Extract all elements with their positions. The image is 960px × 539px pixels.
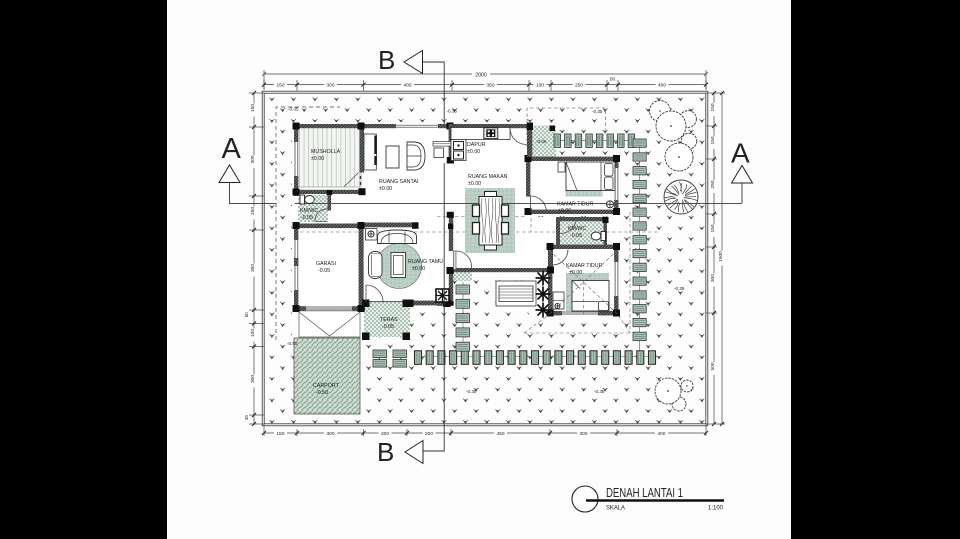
- svg-text:400: 400: [657, 431, 665, 437]
- svg-text:-0.35: -0.35: [592, 109, 603, 114]
- svg-text:450: 450: [496, 431, 504, 437]
- svg-text:±0.00: ±0.00: [558, 208, 571, 214]
- svg-text:150: 150: [250, 104, 256, 112]
- svg-text:-0.35: -0.35: [674, 286, 685, 291]
- svg-text:±0.00: ±0.00: [569, 270, 582, 276]
- svg-text:KM/WC: KM/WC: [568, 226, 586, 232]
- svg-text:200: 200: [425, 431, 433, 437]
- svg-text:DAPUR: DAPUR: [467, 142, 486, 148]
- svg-text:SKALA: SKALA: [606, 506, 625, 512]
- svg-text:300: 300: [710, 274, 716, 282]
- svg-text:50: 50: [610, 77, 616, 83]
- svg-text:KAMAR TIDUR: KAMAR TIDUR: [557, 202, 594, 208]
- svg-text:400: 400: [403, 83, 411, 89]
- svg-text:150: 150: [710, 136, 716, 144]
- svg-text:±0.00: ±0.00: [468, 181, 481, 187]
- svg-text:100: 100: [250, 329, 256, 337]
- svg-text:-0.50: -0.50: [316, 390, 328, 396]
- svg-text:300: 300: [250, 155, 256, 163]
- svg-text:-0.50: -0.50: [287, 341, 298, 346]
- svg-text:-0.35: -0.35: [288, 107, 299, 112]
- svg-text:TERAS: TERAS: [380, 317, 398, 323]
- svg-text:-0.05: -0.05: [382, 324, 394, 330]
- svg-text:-0.05: -0.05: [301, 215, 313, 221]
- svg-text:300: 300: [326, 83, 334, 89]
- svg-text:±0.00: ±0.00: [311, 156, 324, 162]
- svg-text:150: 150: [250, 207, 256, 215]
- svg-text:100: 100: [536, 83, 544, 89]
- svg-text:2000: 2000: [475, 72, 487, 78]
- svg-text:-0.30: -0.30: [466, 389, 477, 394]
- svg-text:GARASI: GARASI: [316, 261, 336, 267]
- svg-text:KM/WC: KM/WC: [300, 208, 318, 214]
- svg-text:1500: 1500: [718, 251, 724, 262]
- svg-text:B: B: [378, 45, 395, 75]
- svg-text:-0.05: -0.05: [536, 139, 547, 144]
- svg-text:250: 250: [710, 180, 716, 188]
- svg-text:-0.05: -0.05: [570, 233, 582, 239]
- svg-text:1:100: 1:100: [708, 506, 724, 512]
- svg-text:40: 40: [244, 415, 249, 420]
- svg-text:250: 250: [575, 83, 583, 89]
- svg-text:350: 350: [486, 83, 494, 89]
- svg-text:350: 350: [250, 264, 256, 272]
- svg-text:±0.00: ±0.00: [412, 266, 425, 272]
- svg-text:B: B: [377, 437, 394, 467]
- svg-text:CARPORT: CARPORT: [313, 383, 340, 389]
- svg-text:-0.35: -0.35: [447, 109, 458, 114]
- svg-text:-0.35: -0.35: [594, 389, 605, 394]
- svg-text:60: 60: [244, 312, 249, 317]
- svg-text:150: 150: [710, 224, 716, 232]
- svg-text:RUANG TAMU: RUANG TAMU: [408, 259, 443, 265]
- svg-text:RUANG MAKAN: RUANG MAKAN: [468, 174, 508, 180]
- svg-text:300: 300: [579, 431, 587, 437]
- svg-text:±0.00: ±0.00: [467, 149, 480, 155]
- svg-text:400: 400: [658, 83, 666, 89]
- svg-text:MUSHOLLA: MUSHOLLA: [311, 149, 341, 155]
- svg-text:KAMAR TIDUR: KAMAR TIDUR: [566, 263, 603, 269]
- svg-text:DENAH LANTAI 1: DENAH LANTAI 1: [606, 486, 683, 500]
- svg-text:-0.05: -0.05: [318, 268, 330, 274]
- svg-text:±0.00: ±0.00: [379, 186, 392, 192]
- svg-text:150: 150: [276, 83, 284, 89]
- svg-text:300: 300: [250, 375, 256, 383]
- svg-text:500: 500: [710, 362, 716, 370]
- svg-text:RUANG SANTAI: RUANG SANTAI: [379, 179, 418, 185]
- svg-text:A: A: [222, 133, 242, 165]
- svg-text:150: 150: [276, 431, 284, 437]
- svg-text:150: 150: [710, 103, 716, 111]
- svg-text:300: 300: [326, 431, 334, 437]
- svg-text:A: A: [731, 138, 750, 169]
